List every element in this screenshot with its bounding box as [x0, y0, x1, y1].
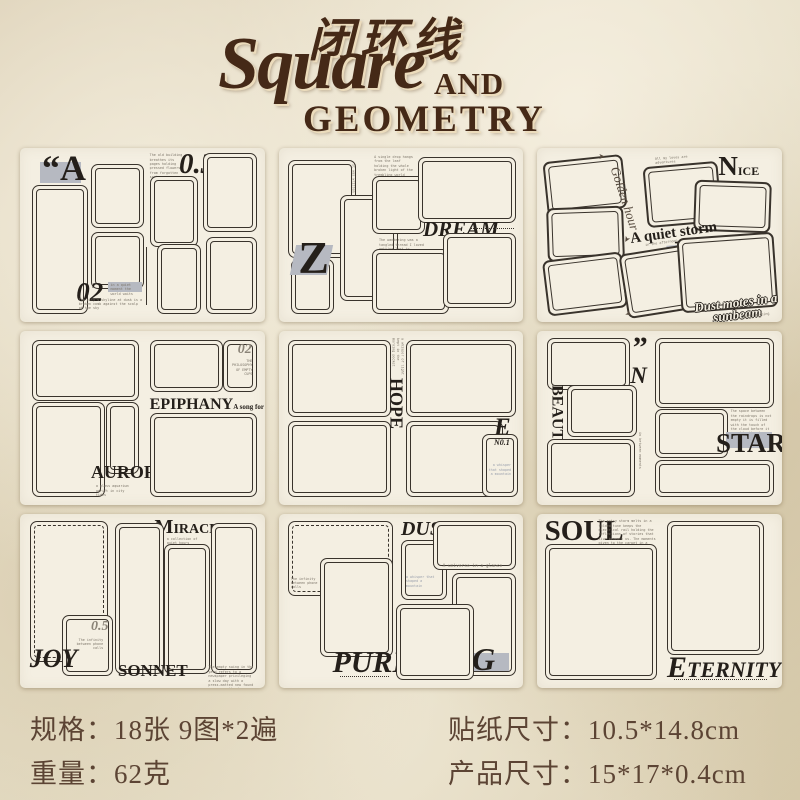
- spec-quantity: 规格：18张 9图*2遍: [30, 708, 278, 747]
- sticker-sheet-9: SOUL The entry storm melts in a folded t…: [537, 514, 782, 688]
- photo-frame: [667, 521, 764, 655]
- sonnet-label: SONNET: [118, 662, 188, 679]
- dotted-rule: [470, 228, 514, 229]
- spec-sticker-size: 贴纸尺寸：10.5*14.8cm: [448, 708, 740, 747]
- epiphany-label: EPIPHANYA song for no audience: [150, 397, 265, 413]
- title-and: AND: [434, 66, 504, 102]
- spec-value: 18张 9图*2遍: [114, 715, 278, 745]
- photo-frame: [418, 157, 515, 223]
- spec-label: 贴纸尺寸：: [448, 715, 588, 745]
- photo-frame: [91, 164, 144, 229]
- spec-value: 62克: [114, 759, 171, 789]
- photo-frame: [433, 521, 516, 570]
- sticker-sheet-7: 0.5 The infinity between phone calls JOY…: [20, 514, 265, 688]
- spec-weight: 重量：62克: [30, 752, 171, 791]
- photo-frame: [115, 523, 163, 675]
- number-label-02: 02: [238, 343, 252, 357]
- divider-line: [146, 247, 148, 304]
- photo-frame: [206, 237, 257, 314]
- tiny-caption: a whisper that shaped a mountain: [406, 575, 438, 588]
- photo-frame: [372, 176, 425, 234]
- joy-label: JOY: [30, 646, 78, 672]
- star-label: STAR: [716, 430, 782, 457]
- photo-frame-overlap: [320, 558, 393, 657]
- title-geometry: GEOMETRY: [303, 98, 546, 141]
- dotted-rule: [674, 679, 767, 680]
- arrow-doodle: ➤: [598, 153, 605, 161]
- spec-product-size: 产品尺寸：15*17*0.4cm: [448, 752, 747, 791]
- tiny-caption-vertical: a whisper of light kept in the morning p…: [391, 338, 404, 376]
- tiny-caption: A single drop hangs from the leaf holdin…: [374, 155, 416, 177]
- dotted-rule: [340, 676, 389, 677]
- photo-frame: [288, 340, 390, 417]
- photo-frame: [203, 153, 256, 232]
- photo-frame: [655, 338, 774, 408]
- photo-frame: [545, 544, 657, 680]
- photo-frame-overlap: [396, 604, 474, 679]
- photo-frame: [164, 544, 210, 675]
- letter-label-z: Z: [298, 235, 329, 281]
- photo-frame: [406, 340, 516, 417]
- photo-frame: [547, 338, 630, 390]
- tiny-caption: a glass aquarium adrift in city tides: [96, 484, 135, 497]
- sticker-sheet-grid: “A 02 in a quiet moment the world waits …: [20, 148, 782, 688]
- letter-label-n: N: [630, 364, 647, 387]
- sticker-sheet-1: “A 02 in a quiet moment the world waits …: [20, 148, 265, 322]
- photo-frame: [32, 402, 105, 496]
- sticker-sheet-5: a whisper of light kept in the morning p…: [279, 331, 524, 505]
- sticker-sheet-4: AURORA a glass aquarium adrift in city t…: [20, 331, 265, 505]
- nice-label: NICE: [718, 153, 759, 180]
- tiny-caption: The infinity between phone calls: [291, 577, 323, 590]
- photo-frame: [372, 249, 450, 314]
- tiny-caption: The city's skyline at dusk is a broken c…: [79, 298, 143, 311]
- hope-label: HOPE: [388, 378, 406, 429]
- sticker-sheet-2: it was written by the moment Z Lucid Dre…: [279, 148, 524, 322]
- spec-value: 15*17*0.4cm: [588, 759, 747, 789]
- quote-mark-label: ”: [633, 333, 648, 363]
- photo-frame: [211, 523, 257, 675]
- tiny-caption: The empty swing in the yard refers to a …: [208, 665, 254, 688]
- spec-label: 重量：: [30, 759, 114, 789]
- spec-label: 规格：: [30, 715, 114, 745]
- title-square: Square: [218, 22, 424, 107]
- photo-frame-tilted: [542, 251, 628, 316]
- no1-label: N0.1: [494, 439, 510, 447]
- photo-frame: [150, 340, 223, 392]
- letter-label-g: G: [472, 643, 495, 675]
- sticker-sheet-3: Golden hour All my loves are adventures …: [537, 148, 782, 322]
- tiny-caption: THE PHILOSOPHY OF EMPTY CUPS: [228, 359, 252, 377]
- number-label-05: 0.5: [91, 620, 109, 634]
- letter-label-a: “A: [42, 150, 86, 186]
- photo-frame: [655, 460, 774, 497]
- photo-frame: [150, 176, 198, 248]
- photo-frame: [443, 233, 516, 308]
- tiny-caption: A universe in a glance: [443, 564, 512, 570]
- spec-value: 10.5*14.8cm: [588, 715, 740, 745]
- spec-label: 产品尺寸：: [448, 759, 588, 789]
- tiny-caption-vertical: in between moments: [638, 432, 642, 491]
- photo-frame: [150, 413, 257, 497]
- sticker-sheet-8: The infinity between phone calls PURE DU…: [279, 514, 524, 688]
- tiny-caption: a whisper that shaped a mountain: [487, 463, 511, 476]
- photo-frame: [547, 439, 635, 497]
- tiny-caption: in a quiet moment the world waits: [111, 283, 143, 296]
- photo-frame: [567, 385, 638, 437]
- photo-frame: [157, 244, 201, 314]
- photo-frame: [288, 421, 390, 496]
- photo-frame: [32, 340, 139, 401]
- sticker-sheet-6: ” N BEAUTY in between moments The space …: [537, 331, 782, 505]
